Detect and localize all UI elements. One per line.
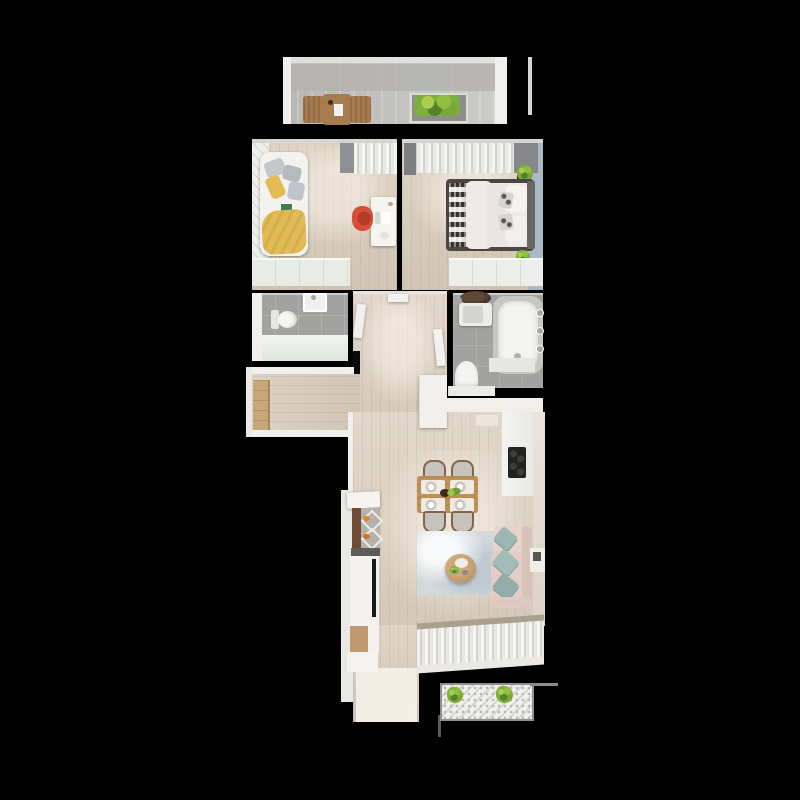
bar-counter [347,491,381,509]
balcony-top-left-wall [283,57,291,124]
kids-chair-red [352,206,373,231]
kitchen-wall-cabinet-door [476,415,498,426]
balcony-top-right-wall [495,57,507,124]
wc-sink-faucet [311,295,316,300]
wc-toilet-bowl [278,311,297,328]
bar-wood-strip [352,508,361,548]
bathroom-washer-lid [463,306,483,323]
kids-desk-item [388,202,393,206]
bar-plate-1 [363,516,370,521]
neighbour-wall-fragment [528,57,532,115]
bed-aztec-runner-overlay [449,183,466,247]
corridor-bottom-wall [252,430,360,437]
kids-bed-pillow-3 [287,181,306,202]
kids-desk-laptop [375,212,391,224]
kids-bed-blanket [261,209,307,255]
dining-chair-bottom-left [423,511,446,533]
left-wall-upper [348,412,353,495]
bathtub-knob-2 [536,327,544,335]
kids-curtain-white [354,143,397,174]
bedroom-dresser [449,258,543,286]
tv-cabinet-wood-inlay [350,626,368,652]
bed-cushion-patterned-2 [498,213,515,231]
placemat-3 [421,498,445,512]
placemat-4 [450,498,474,512]
coffee-table-item [462,570,468,575]
bathroom-bottom-wall [448,386,495,396]
wc-counter [262,335,348,361]
hallway-closet [419,375,447,428]
patio-table-paper [334,104,343,116]
kitchen-top-wall [447,398,543,412]
kids-desk-notepad [380,232,389,239]
bathtub-knob-1 [536,309,544,317]
wc-floor [252,293,348,337]
patio-table-cup [328,100,333,105]
living-right-wall [533,412,545,626]
bedroom-curtain-dark-left [404,143,416,175]
hallway-wall-notch [353,351,360,375]
bar-plate-2 [363,534,370,539]
cooktop [508,447,526,478]
balcony-bottom-plant-right [496,686,513,703]
planter-plants [414,95,460,116]
balcony-bottom-wall-line [530,683,558,686]
kids-curtain-grey [340,143,354,173]
bed-headboard [527,181,535,249]
patio-chair-right [350,96,371,123]
balcony-bottom-edge-line [438,715,441,737]
entry-light-floor [356,668,417,722]
tv-screen [372,559,376,617]
wc-counter-side-wall [252,335,262,361]
patio-chair-left [303,96,324,123]
wall-ledge-item [533,552,541,561]
corridor-top-wall [252,367,354,374]
dining-chair-bottom-right [451,511,474,533]
floor-plan-canvas [0,0,800,800]
bathroom-toilet [455,361,478,388]
console-bottom [347,652,378,672]
tv-shelf [351,548,380,556]
hallway-door-top [388,294,408,302]
bathtub-knob-3 [536,345,544,353]
balcony-top-wall-shade [283,57,507,91]
corridor-wardrobe [253,380,270,431]
balcony-bottom-plant-left [447,687,463,703]
wc-top-wall [252,293,348,295]
kids-wardrobe [252,258,350,286]
sofa-armrest [492,597,531,607]
wc-left-wall [252,293,262,337]
bathtub-deck [489,358,535,372]
coffee-table-plant [450,566,459,574]
